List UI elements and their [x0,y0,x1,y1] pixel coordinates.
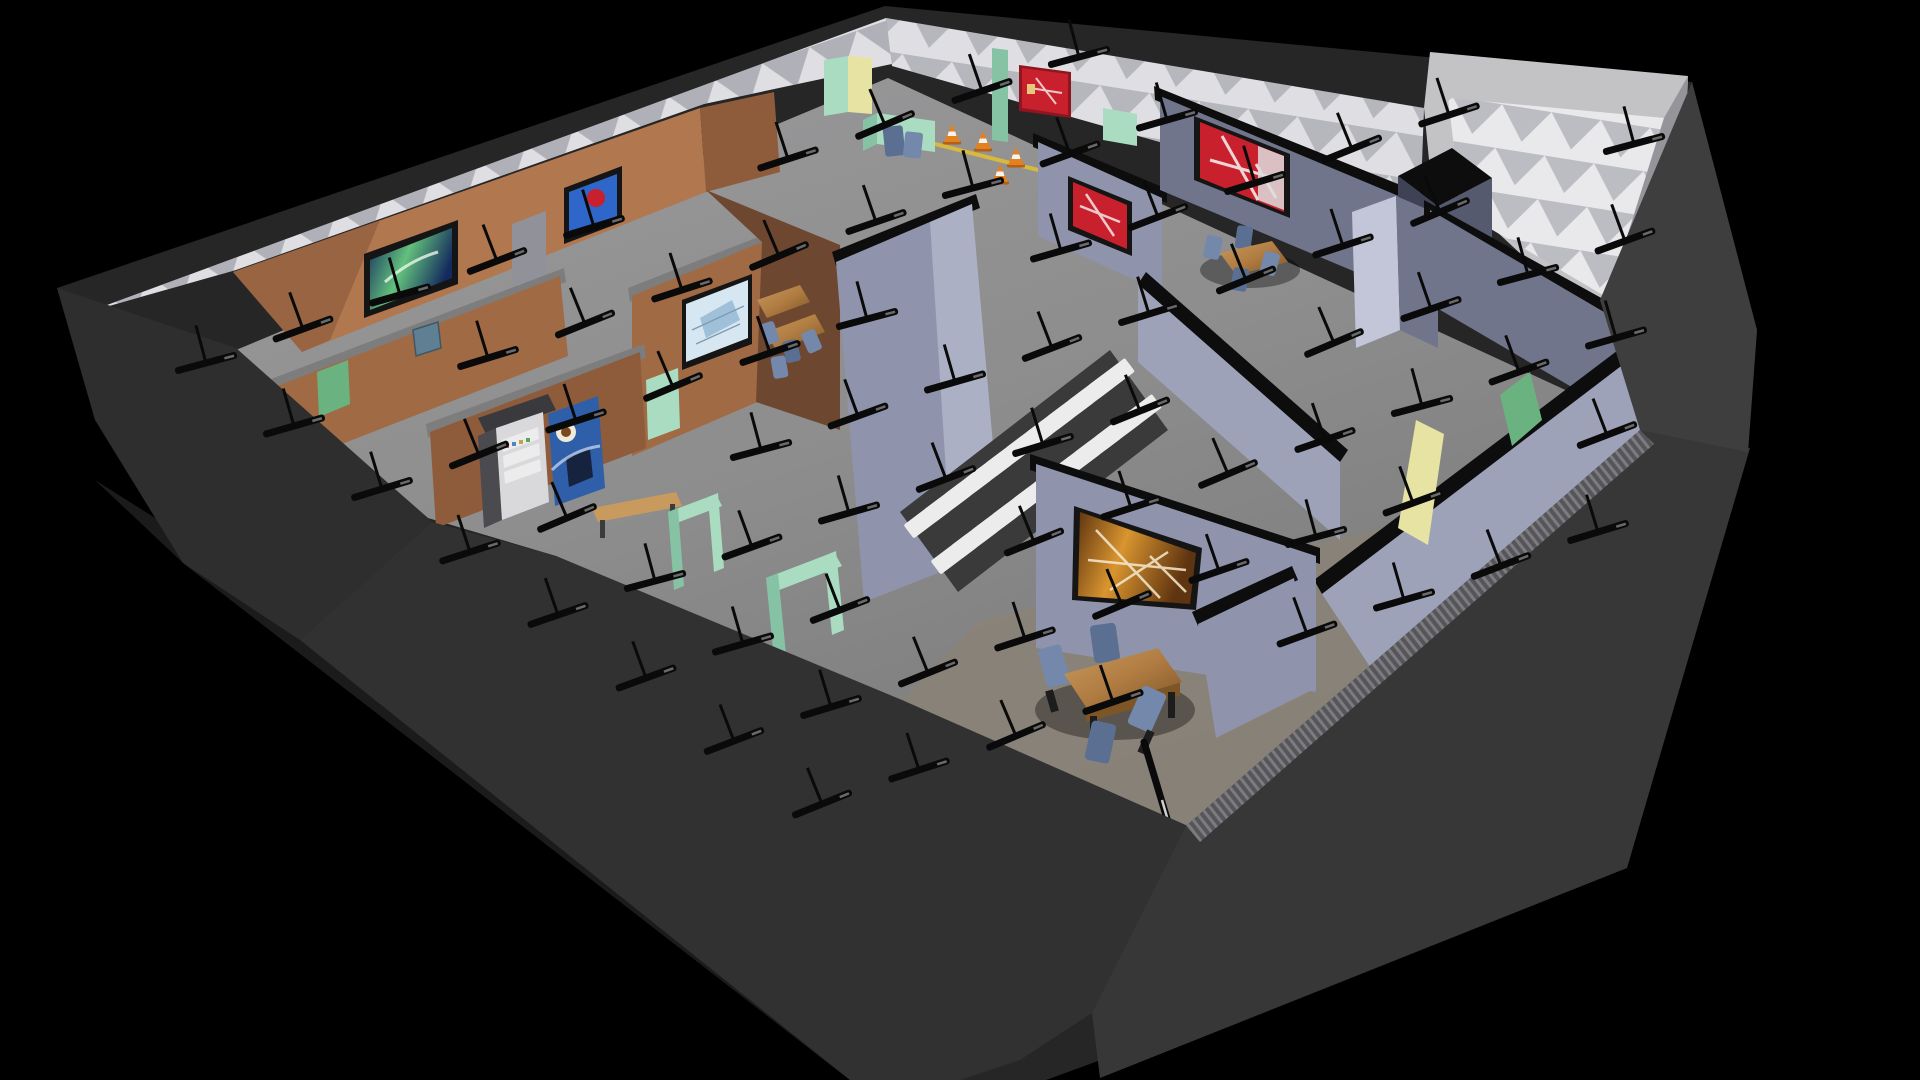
mint-door-kitchen [646,368,680,440]
chair [903,131,924,159]
chair [882,125,905,157]
render-viewport[interactable] [0,0,1920,1080]
mint-pillar [992,48,1008,142]
mint-door-top [1103,108,1137,146]
floorplan-render [0,0,1920,1080]
chair [1089,622,1120,663]
mint-door-lobby [824,56,848,116]
yellow-door-lobby [848,56,872,114]
red-poster [1019,65,1071,118]
